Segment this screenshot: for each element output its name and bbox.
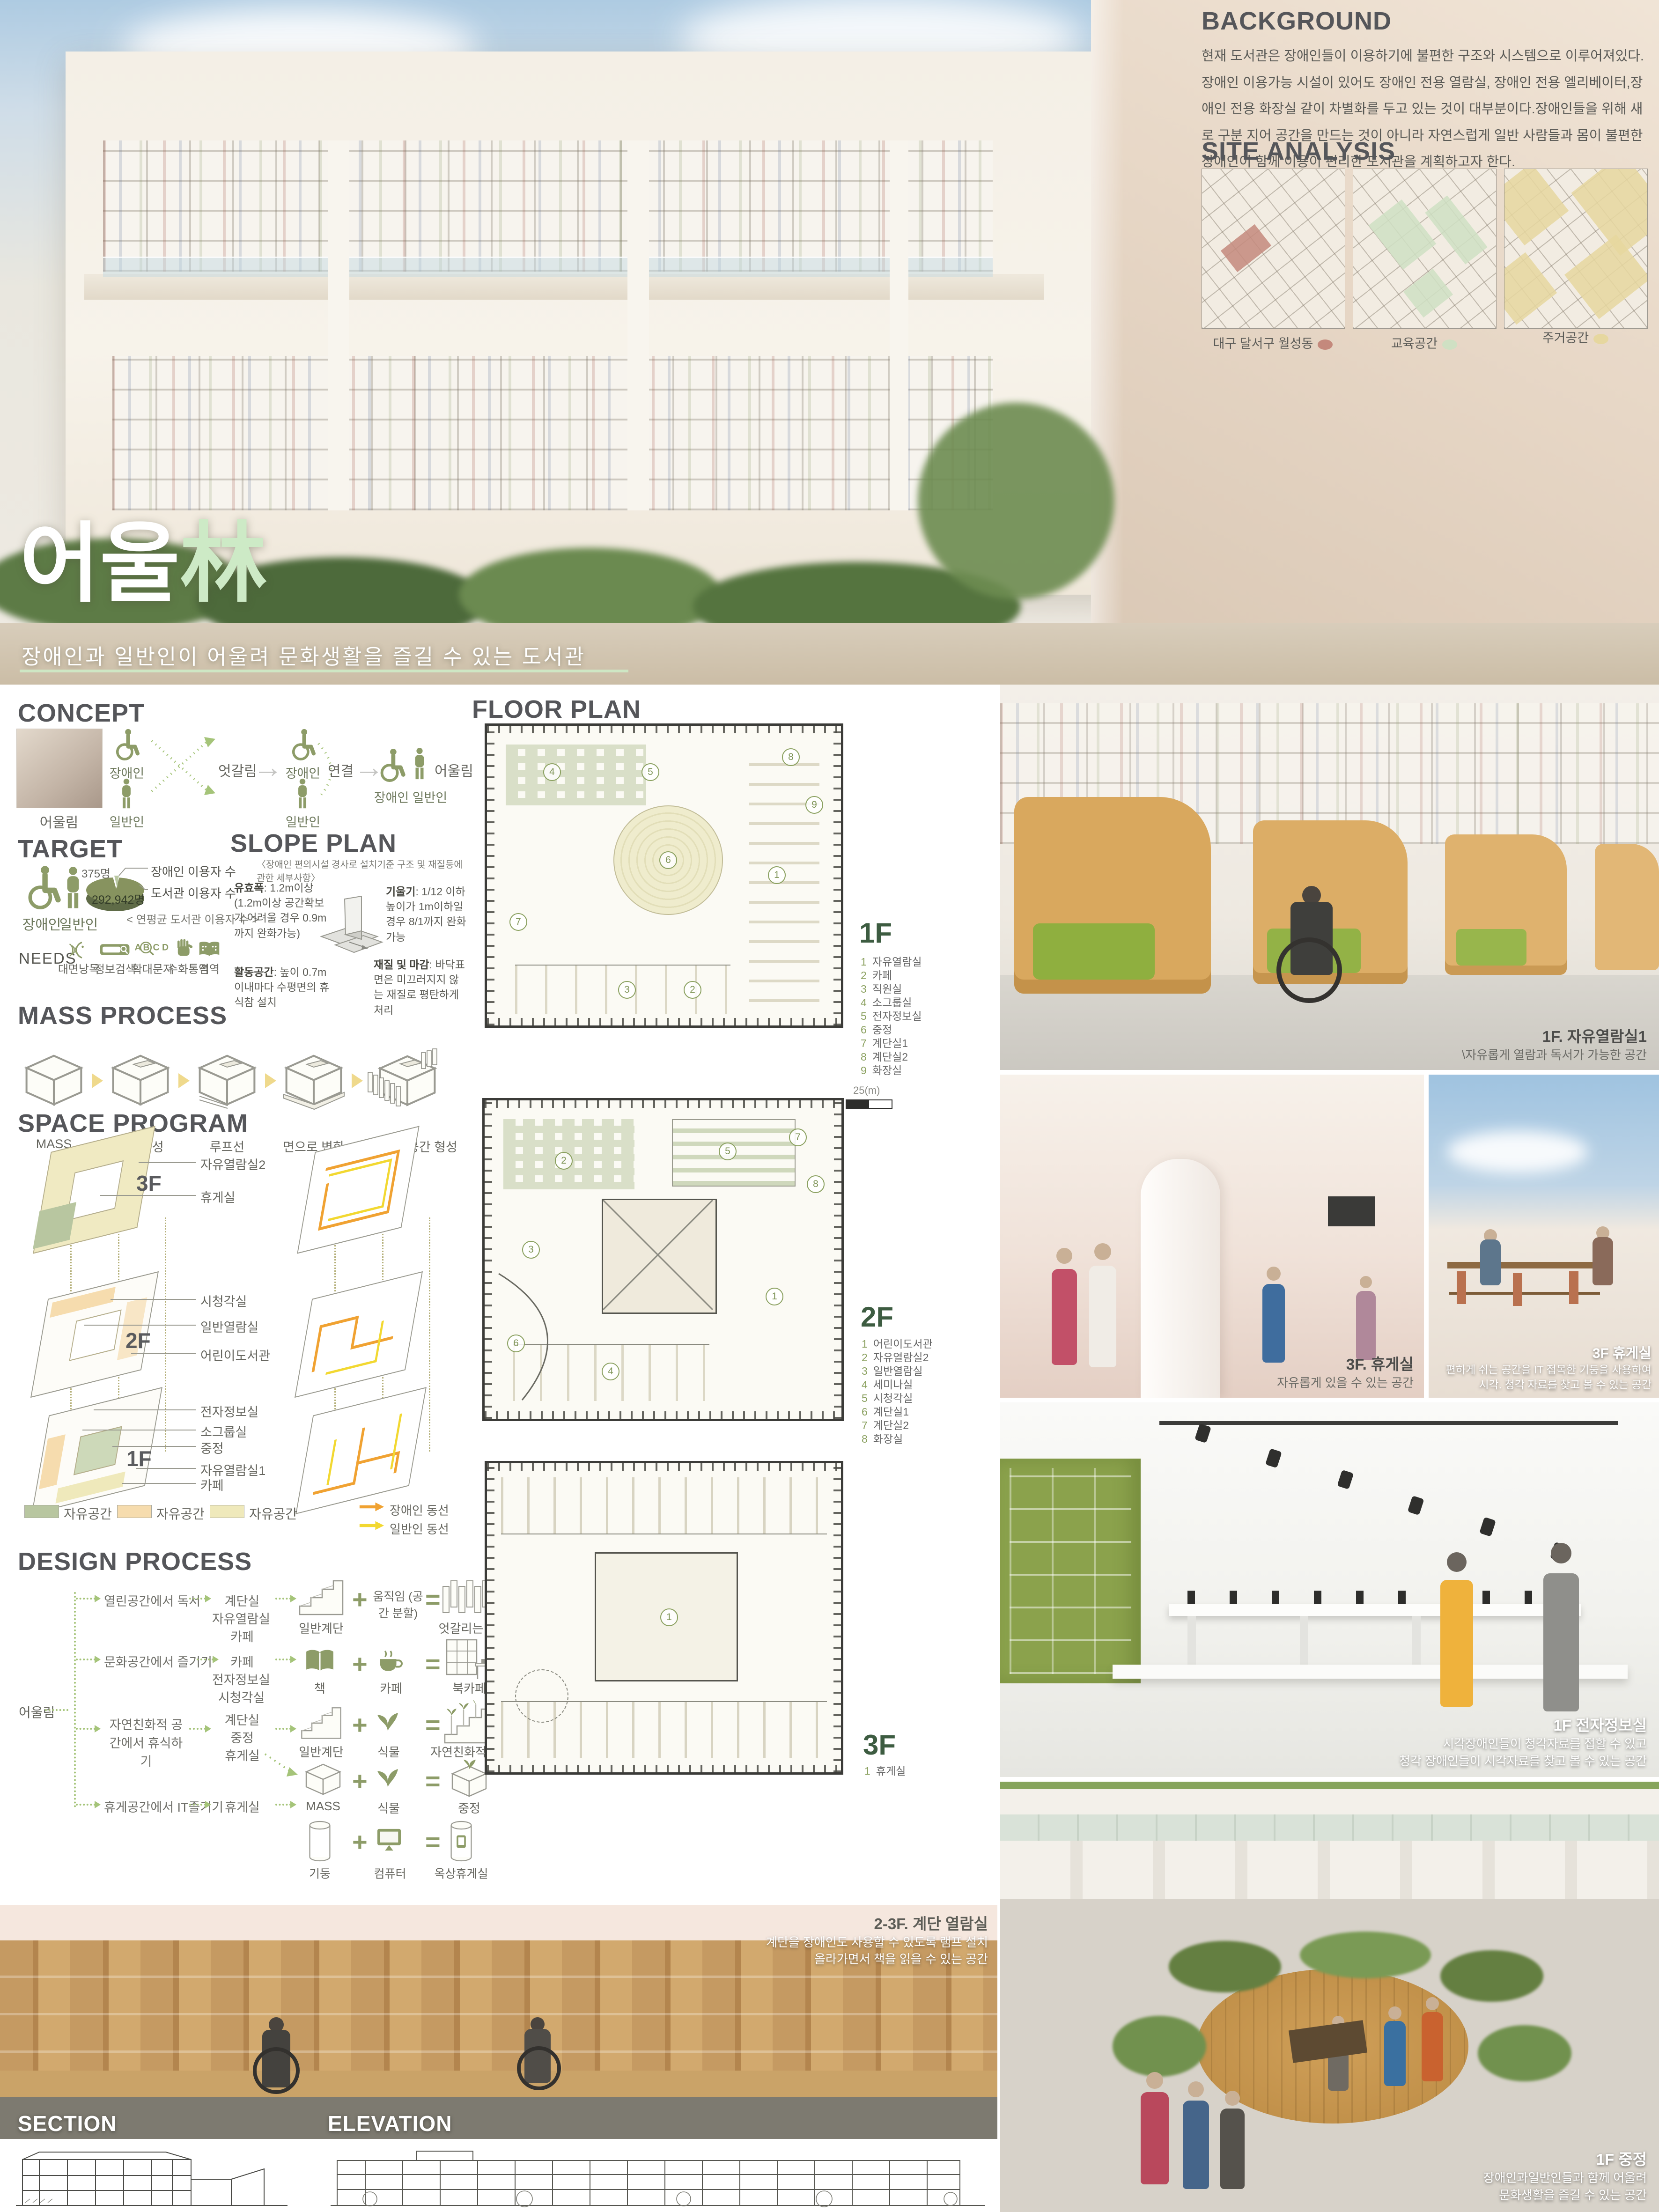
plan-2f-legend: 1어린이도서관 2자유열람실2 3일반열람실 4세미나실 5시청각실 6계단실1… — [862, 1337, 933, 1446]
body — [1183, 2101, 1209, 2189]
room-marker: 1 — [660, 1608, 678, 1626]
equals-sign: = — [425, 1829, 441, 1855]
wheel — [1276, 937, 1342, 1003]
to-space-arrowhead — [205, 1595, 211, 1602]
wall-hatch — [833, 726, 841, 1025]
head — [1267, 1267, 1281, 1281]
head — [1188, 2081, 1204, 2097]
axon-2f-flow — [295, 1271, 423, 1398]
to-formula-arrowhead — [290, 1801, 296, 1808]
caption-reading-room: 1F. 자유열람실1 \자유롭게 열람과 독서가 가능한 공간 — [1462, 1024, 1647, 1063]
legend-label: 자유공간 — [156, 1504, 205, 1523]
legend-label: 자유공간 — [64, 1504, 112, 1523]
general-label: 일반인 — [107, 812, 147, 830]
table-legs — [1187, 1616, 1196, 1672]
plan-3f: 1 — [485, 1461, 843, 1775]
wheelchair-icon — [376, 748, 406, 782]
mass-arrow — [265, 1073, 276, 1088]
activity-label: 문화공간에서 즐기기 — [104, 1652, 212, 1670]
room-name: 일반열람실 — [873, 1365, 923, 1377]
shelf-lines — [1010, 1468, 1131, 1674]
mass-step-3 — [192, 1051, 262, 1112]
mass-step-4 — [279, 1051, 349, 1112]
space-label: 카페 — [216, 1652, 268, 1670]
room-num: 3 — [861, 983, 867, 995]
equals-sign: = — [425, 1768, 441, 1794]
caption-digital-room: 1F 전자정보실 시각장애인들이 청각자료를 접할 수 있고 청각 장애인들이 … — [1399, 1713, 1647, 1770]
mass-process-heading: MASS PROCESS — [18, 1001, 227, 1030]
person-silhouette — [1480, 1229, 1501, 1285]
room-marker: 1 — [768, 866, 786, 884]
stairs-icon — [298, 1577, 345, 1616]
room-num: 1 — [862, 1338, 868, 1350]
plus-sign: + — [352, 1829, 368, 1855]
leader — [111, 1299, 196, 1300]
room-name: 계단실1 — [872, 1037, 908, 1049]
legend-row: 7계단실1 — [861, 1037, 922, 1050]
column-row — [1000, 1841, 1659, 1899]
reading-pod — [1595, 844, 1659, 970]
room-num: 3 — [862, 1365, 868, 1377]
branch-arrowhead — [95, 1801, 101, 1808]
wheel — [517, 2046, 561, 2090]
res-patch — [1504, 169, 1569, 245]
wall-hatch — [834, 1100, 841, 1419]
bookshelf-band-upper — [103, 140, 993, 272]
leader — [131, 1353, 196, 1354]
plus-sign: + — [352, 1712, 368, 1738]
floor-label-3f: 3F — [136, 1171, 162, 1196]
section-heading: SECTION — [18, 2111, 117, 2136]
to-space-arrow — [189, 1728, 206, 1730]
legend-dot-green — [1442, 339, 1457, 350]
head — [1551, 1543, 1571, 1563]
design-spine — [74, 1592, 76, 1807]
caption-title: 1F 전자정보실 — [1399, 1713, 1647, 1735]
pie-small-value: 375명 — [81, 864, 111, 881]
concept-photo — [16, 729, 103, 808]
room-label: 전자정보실 — [200, 1402, 258, 1420]
link-label: 연결 — [328, 759, 354, 780]
column — [627, 140, 649, 510]
caption-line: 시각장애인들이 청각자료를 접할 수 있고 — [1399, 1735, 1647, 1752]
person-icon — [293, 778, 312, 809]
room-name: 카페 — [872, 969, 892, 981]
together-label: 장애인 일반인 — [371, 788, 450, 806]
site-map-1-caption: 대구 달서구 월성동 — [1202, 333, 1344, 352]
to-formula-arrow — [275, 1804, 291, 1806]
floor-label-2f: 2F — [125, 1328, 151, 1353]
mass-cube-icon — [302, 1762, 345, 1796]
to-formula-arrow — [275, 1598, 291, 1600]
project-title: 어울林 — [20, 521, 267, 608]
skylight — [602, 1199, 717, 1314]
formula-b: 카페 — [375, 1679, 407, 1696]
formula-a: 기둥 — [304, 1865, 335, 1881]
room-marker: 3 — [522, 1241, 540, 1259]
person-silhouette — [1440, 1552, 1473, 1707]
caption-line: 문화생활을 즐길 수 있는 공간 — [1483, 2187, 1647, 2204]
plan-1f: 1 2 3 4 5 6 7 8 9 — [485, 723, 843, 1028]
wall-hatch — [487, 726, 841, 733]
floor-plan-heading: FLOOR PLAN — [472, 695, 641, 724]
res-patch — [1504, 252, 1557, 324]
site-parcel — [1221, 224, 1271, 272]
speech-waves-icon — [68, 940, 89, 960]
connector — [165, 1217, 166, 1452]
person-silhouette — [1593, 1226, 1613, 1285]
leader — [100, 1195, 196, 1196]
it-pillar-icon — [450, 1820, 473, 1863]
room-name: 중정 — [872, 1024, 892, 1036]
body — [1593, 1237, 1613, 1285]
to-formula-arrowhead — [290, 1595, 296, 1602]
render-digital-room: 1F 전자정보실 시각장애인들이 청각자료를 접할 수 있고 청각 장애인들이 … — [1000, 1402, 1659, 1777]
harmony-label: 어울림 — [435, 759, 473, 780]
caption-lounge: 3F. 휴게실 자유롭게 있을 수 있는 공간 — [1277, 1352, 1414, 1391]
to-space-arrow — [189, 1598, 206, 1600]
legend-swatch-yellow — [210, 1505, 244, 1518]
mass-arrow — [92, 1073, 103, 1088]
window-band — [1000, 1814, 1659, 1841]
tablets — [1187, 1591, 1195, 1604]
legend-label: 자유공간 — [249, 1504, 297, 1523]
column — [328, 140, 349, 510]
room-num: 4 — [861, 996, 867, 1009]
person-silhouette — [1356, 1276, 1376, 1360]
green-wall — [1000, 1459, 1141, 1683]
room-name: 자유열람실2 — [873, 1351, 929, 1364]
caption-title: 2-3F. 계단 열람실 — [599, 1911, 988, 1934]
to-space-arrowhead — [205, 1801, 211, 1808]
term: 기울기 — [386, 885, 415, 898]
general-label: 일반인 — [283, 812, 323, 830]
equals-sign: = — [425, 1651, 441, 1677]
leader — [82, 1430, 196, 1430]
arrow-right: → — [253, 752, 283, 782]
room-name: 세미나실 — [873, 1379, 913, 1391]
person-silhouette — [1220, 2091, 1245, 2189]
room-name: 화장실 — [873, 1433, 903, 1445]
formula-b: 컴퓨터 — [372, 1865, 408, 1881]
axon-strip — [56, 1471, 125, 1504]
branch-arrow — [76, 1659, 96, 1660]
head — [1360, 1276, 1372, 1288]
term: 활동공간 — [234, 966, 274, 978]
need-label: 정보검색 — [94, 960, 137, 976]
head — [1225, 2091, 1240, 2106]
room-label: 중정 — [200, 1438, 224, 1457]
body — [1089, 1266, 1116, 1367]
edu-patch — [1369, 199, 1437, 270]
body — [1052, 1269, 1077, 1365]
activity-label: 열린공간에서 독서 — [104, 1591, 200, 1609]
room-label: 카페 — [200, 1475, 224, 1494]
caption-stair-library: 2-3F. 계단 열람실 계단을 장애인도 사용할 수 있도록 램프 설치 올라… — [599, 1911, 988, 1968]
formula-result2: 중정 — [448, 1799, 491, 1816]
formula-result: 옥상휴게실 — [431, 1865, 492, 1881]
body — [1220, 2109, 1245, 2189]
wall-edge-highlight — [1091, 0, 1124, 685]
leader — [139, 1162, 196, 1163]
leader — [112, 1446, 196, 1447]
room-marker: 2 — [555, 1152, 573, 1170]
computer-icon — [376, 1827, 403, 1852]
wheelchair-icon — [22, 865, 63, 909]
formula-a2: MASS — [300, 1799, 347, 1814]
need-label: 점역 — [193, 960, 226, 976]
pillar-icon — [308, 1820, 332, 1863]
branch-arrow — [76, 1598, 96, 1600]
to-formula-arrowhead — [290, 1725, 296, 1733]
room-marker: 3 — [618, 981, 636, 999]
subtitle-underline — [20, 670, 628, 672]
legend-swatch-orange — [117, 1505, 152, 1518]
body — [1480, 1239, 1501, 1285]
legend-row: 9화장실 — [861, 1064, 922, 1077]
wheelchair-icon — [288, 729, 317, 760]
legend-dot-yellow — [1593, 334, 1608, 344]
room-label: 일반열람실 — [200, 1317, 258, 1335]
flow-legend-label: 장애인 동선 — [390, 1501, 449, 1519]
flow-legend-label: 일반인 동선 — [390, 1520, 449, 1537]
room-marker: 7 — [509, 913, 527, 931]
hero-render: 어울林 장애인과 일반인이 어울려 문화생활을 즐길 수 있는 도서관 BACK… — [0, 0, 1659, 685]
mass-step-2 — [105, 1051, 176, 1112]
head — [1388, 2006, 1401, 2020]
to-space-arrow — [197, 1659, 214, 1660]
person-silhouette — [1262, 1267, 1285, 1363]
room-num: 2 — [862, 1351, 868, 1364]
axon-strip — [39, 1434, 66, 1489]
person-silhouette — [1089, 1243, 1116, 1367]
room-num: 5 — [862, 1392, 868, 1404]
equals-sign: = — [425, 1586, 441, 1613]
formula-a: 일반계단 — [294, 1619, 348, 1637]
branch-arrowhead — [95, 1656, 101, 1663]
wall-hatch — [487, 1018, 841, 1025]
room-label: 시청각실 — [200, 1291, 247, 1310]
building-band — [1000, 1782, 1659, 1899]
title-korean: 어울 — [20, 516, 180, 612]
axon-green — [33, 1202, 76, 1249]
plan-2f-label: 2F — [861, 1301, 893, 1333]
site-map-2-caption: 교육공간 — [1353, 333, 1496, 352]
pod-seat — [1033, 923, 1155, 980]
bookshelf-band-lower — [112, 356, 993, 510]
room-name: 전자정보실 — [872, 1010, 922, 1022]
legend-row: 8계단실2 — [861, 1050, 922, 1064]
caption-title: 3F. 휴게실 — [1277, 1352, 1414, 1374]
bush-ring — [1300, 1932, 1431, 1978]
stairs-icon — [300, 1704, 343, 1740]
slope-item-width: 유효폭: 1.2m이상 (1.2m이상 공간확보가 어려울 경우 0.9m까지 … — [234, 880, 331, 941]
room-num: 8 — [862, 1433, 868, 1445]
reading-pod — [1014, 797, 1211, 994]
to-formula-arrowhead — [290, 1656, 296, 1663]
room-marker: 8 — [807, 1175, 825, 1193]
flow-lines — [295, 1272, 421, 1396]
display-table — [1169, 1604, 1581, 1616]
body — [1262, 1284, 1285, 1363]
wall-hatch — [485, 1411, 841, 1419]
person-silhouette — [1543, 1543, 1579, 1711]
room-name: 계단실2 — [872, 1051, 908, 1063]
branch-arrowhead — [95, 1595, 101, 1602]
plus-sign: + — [352, 1768, 368, 1794]
axon-1f-flow — [295, 1387, 427, 1514]
room-name: 직원실 — [872, 983, 902, 995]
table — [1447, 1262, 1602, 1268]
mass-step-1 — [19, 1051, 89, 1112]
map-label: 주거공간 — [1542, 331, 1589, 345]
branch-arrowhead — [95, 1725, 101, 1733]
mass-arrow — [352, 1073, 363, 1088]
legend-row: 4소그룹실 — [861, 996, 922, 1010]
room-label: 휴게실 — [200, 1187, 236, 1206]
caption-line: 편하게 쉬는 공간을 IT 접목한 기둥을 사용하여 — [1446, 1362, 1652, 1377]
presentation-board: 어울林 장애인과 일반인이 어울려 문화생활을 즐길 수 있는 도서관 BACK… — [0, 0, 1659, 2212]
chair — [1569, 1271, 1578, 1304]
mass-step-label: 루프선 — [197, 1137, 258, 1155]
res-patch — [1564, 235, 1648, 319]
caption-line: 자유롭게 있을 수 있는 공간 — [1277, 1374, 1414, 1391]
magnify-text-icon — [134, 940, 170, 956]
body — [1440, 1580, 1473, 1707]
plan-1f-legend: 1자유열람실 2카페 3직원실 4소그룹실 5전자정보실 6중정 7계단실1 8… — [861, 955, 922, 1077]
room-marker: 1 — [766, 1288, 783, 1305]
scale-label: 25(m) — [853, 1084, 880, 1097]
person-silhouette — [1141, 2072, 1169, 2184]
site-map-3 — [1504, 169, 1648, 329]
caption-title: 1F 중정 — [1483, 2147, 1647, 2169]
room-marker: 9 — [805, 796, 823, 814]
room-num: 7 — [862, 1419, 868, 1431]
connector — [429, 1217, 430, 1452]
activity-label: 자연친화적 공간에서 휴식하기 — [104, 1715, 188, 1770]
plus-sign: + — [352, 1586, 368, 1613]
space-label: 자유열람실 — [206, 1609, 276, 1627]
room-name: 시청각실 — [873, 1392, 913, 1404]
map-label: 교육공간 — [1391, 337, 1438, 351]
room-num: 2 — [861, 969, 867, 981]
caption-title: 3F 휴게실 — [1446, 1342, 1652, 1362]
chair — [1457, 1271, 1466, 1304]
tree — [918, 403, 1114, 599]
space-label: 전자정보실 — [206, 1670, 276, 1688]
person-silhouette — [1422, 1997, 1443, 2081]
mass-step-5 — [365, 1048, 450, 1116]
site-analysis-heading: SITE ANALYSIS — [1202, 137, 1395, 166]
person-silhouette — [1052, 1248, 1077, 1365]
mass-arrow — [178, 1073, 190, 1088]
project-subtitle: 장애인과 일반인이 어울려 문화생활을 즐길 수 있는 도서관 — [22, 640, 586, 670]
room-label: 소그룹실 — [200, 1422, 247, 1440]
caption-line: 올라가면서 책을 읽을 수 있는 공간 — [599, 1951, 988, 1968]
person-icon — [409, 747, 430, 780]
screen — [1328, 1196, 1375, 1226]
leaf-icon — [376, 1710, 400, 1733]
space-label: 계단실 — [212, 1591, 273, 1609]
edu-patch — [1425, 195, 1487, 264]
map-label: 대구 달서구 월성동 — [1213, 337, 1313, 351]
to-space-arrow — [189, 1804, 206, 1806]
caption-line: 계단을 장애인도 사용할 수 있도록 램프 설치 — [599, 1934, 988, 1951]
wall-hatch — [833, 1463, 841, 1772]
term: 재질 및 마감 — [374, 959, 429, 971]
skylight-cross — [603, 1200, 713, 1310]
room-num: 1 — [861, 956, 867, 968]
legend-dot-red — [1318, 339, 1333, 350]
space-label: 중정 — [216, 1728, 268, 1746]
wheelchair-icon — [112, 729, 140, 760]
cross-label: 엇갈림 — [218, 759, 257, 780]
background-heading: BACKGROUND — [1202, 7, 1392, 36]
site-map-1 — [1202, 169, 1345, 329]
plan-3f-label: 3F — [863, 1729, 896, 1761]
room-name: 휴게실 — [876, 1765, 906, 1777]
legend-row: 8화장실 — [862, 1432, 933, 1446]
legend-row: 1자유열람실 — [861, 955, 922, 969]
room-label: 자유열람실2 — [200, 1155, 265, 1173]
pod-seat — [1456, 929, 1526, 966]
wall-hatch — [487, 1765, 841, 1772]
wall-hatch — [487, 1463, 841, 1471]
person-icon — [117, 778, 136, 809]
pillar — [1141, 1159, 1220, 1398]
term: 유효폭 — [234, 882, 264, 894]
hand-icon — [174, 938, 194, 958]
caption-line: \자유롭게 열람과 독서가 가능한 공간 — [1462, 1047, 1647, 1063]
chair — [1513, 1273, 1522, 1306]
spotlight-track — [1159, 1421, 1618, 1425]
round-table — [515, 1669, 568, 1723]
elevation-heading: ELEVATION — [328, 2111, 452, 2136]
render-lounge-it: 3F 휴게실 편하게 쉬는 공간을 IT 접목한 기둥을 사용하여 시각. 청각… — [1429, 1075, 1659, 1398]
floor-label-1f: 1F — [126, 1446, 152, 1471]
formula-b: 식물 — [375, 1743, 403, 1760]
room-num: 7 — [861, 1037, 867, 1049]
room-num: 1 — [864, 1765, 870, 1777]
column — [890, 140, 908, 510]
caption-title: 1F. 자유열람실1 — [1462, 1024, 1647, 1047]
caption-line: 장애인과일반인들과 함께 어울려 — [1483, 2169, 1647, 2186]
section-drawing — [11, 2146, 292, 2210]
cross-arrows — [149, 736, 217, 802]
book-icon — [304, 1648, 335, 1674]
room-name: 화장실 — [872, 1064, 902, 1077]
render-courtyard: 1F 중정 장애인과일반인들과 함께 어울려 문화생활을 즐길 수 있는 공간 — [1000, 1782, 1659, 2212]
to-space-arrowhead — [205, 1725, 211, 1733]
person-silhouette — [1384, 2006, 1406, 2086]
legend-row: 7계단실2 — [862, 1419, 933, 1432]
wall-hatch — [487, 726, 494, 1025]
design-root: 어울림 — [19, 1703, 55, 1721]
wheel — [253, 2047, 300, 2094]
wall-hatch — [485, 1100, 841, 1108]
formula-a: 책 — [304, 1679, 335, 1696]
head — [1056, 1248, 1072, 1264]
caption-lounge-it: 3F 휴게실 편하게 쉬는 공간을 IT 접목한 기둥을 사용하여 시각. 청각… — [1446, 1342, 1652, 1392]
room-name: 어린이도서관 — [873, 1338, 933, 1350]
scale-bar-fill — [847, 1100, 869, 1108]
body — [1543, 1573, 1579, 1711]
branch-arrow — [76, 1728, 96, 1730]
axon-hole — [69, 1309, 121, 1361]
room-name: 계단실2 — [873, 1419, 909, 1431]
design-process-heading: DESIGN PROCESS — [18, 1547, 252, 1576]
legend-swatch-green — [24, 1505, 59, 1518]
